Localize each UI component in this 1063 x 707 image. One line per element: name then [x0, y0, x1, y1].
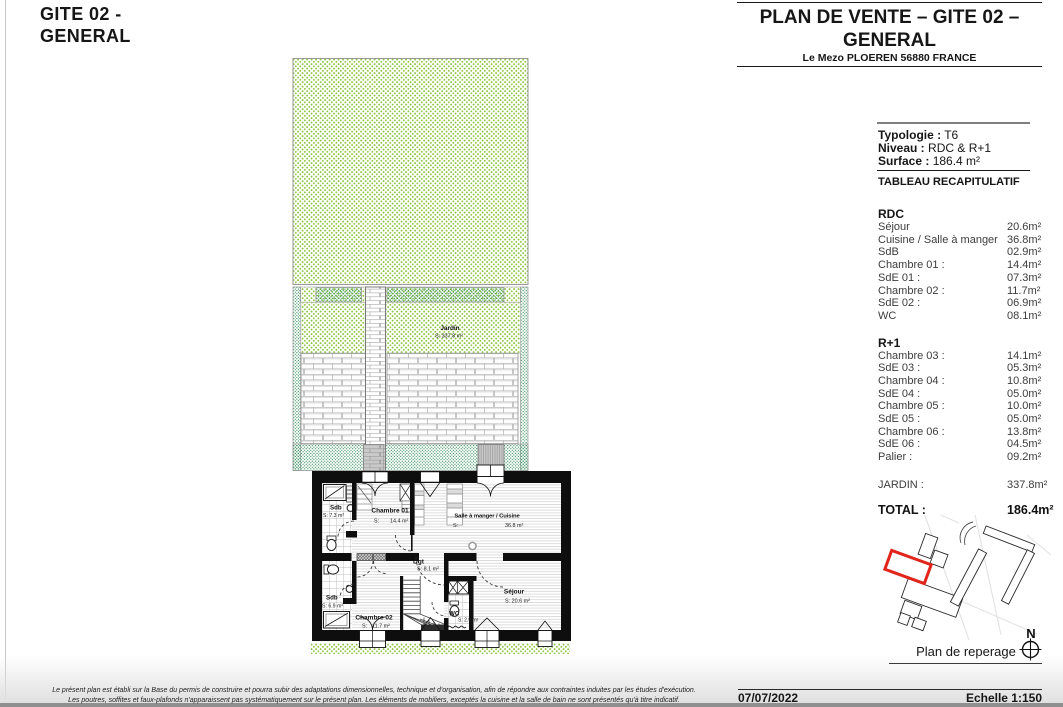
svg-text:Dgt: Dgt — [413, 559, 425, 566]
svg-text:S: 337.8 m²: S: 337.8 m² — [435, 334, 463, 340]
svg-text:WC: WC — [449, 611, 460, 618]
svg-text:S:: S: — [362, 624, 367, 630]
svg-text:Sdb: Sdb — [326, 595, 338, 602]
svg-text:S: 6.9 m²: S: 6.9 m² — [322, 604, 343, 610]
svg-text:Chambre 01: Chambre 01 — [371, 508, 409, 515]
svg-text:S:: S: — [374, 519, 379, 525]
svg-text:Salle à manger / Cuisine: Salle à manger / Cuisine — [454, 514, 520, 520]
svg-text:14.4 m²: 14.4 m² — [390, 519, 408, 525]
svg-text:Jardin: Jardin — [440, 325, 459, 332]
svg-text:Chambre 02: Chambre 02 — [355, 615, 393, 622]
svg-text:11.7 m²: 11.7 m² — [372, 624, 390, 630]
svg-text:S: 2.9 m²: S: 2.9 m² — [458, 618, 479, 624]
svg-text:S: 20.6 m²: S: 20.6 m² — [505, 599, 530, 605]
svg-text:Séjour: Séjour — [504, 589, 525, 596]
svg-text:Sdb: Sdb — [330, 505, 342, 512]
svg-text:S:: S: — [453, 523, 458, 529]
svg-text:36.8 m²: 36.8 m² — [505, 523, 523, 529]
svg-text:S: 8.1 m²: S: 8.1 m² — [417, 567, 439, 573]
svg-text:S: 7.3 m²: S: 7.3 m² — [323, 513, 344, 519]
